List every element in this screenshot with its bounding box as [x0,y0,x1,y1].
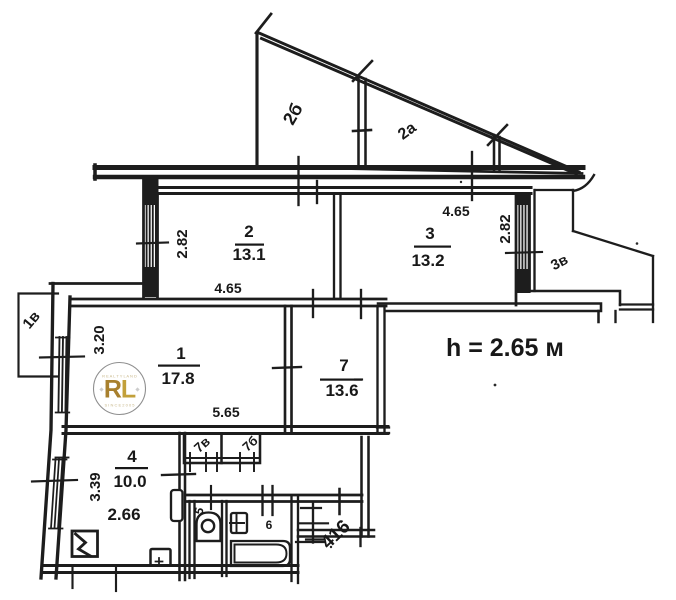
svg-text:h = 2.65 м: h = 2.65 м [446,334,564,362]
svg-text:3: 3 [425,224,434,243]
svg-text:2: 2 [244,222,253,241]
svg-text:3.39: 3.39 [87,472,104,501]
svg-text:2.66: 2.66 [107,505,140,524]
svg-text:R E A L T Y L A N D: R E A L T Y L A N D [102,374,137,379]
svg-text:S I N C E 2 0 0 5: S I N C E 2 0 0 5 [104,403,135,408]
svg-text:13.2: 13.2 [411,251,444,270]
svg-text:RL: RL [104,376,136,404]
svg-text:10.0: 10.0 [113,472,146,491]
svg-text:4: 4 [127,447,137,466]
svg-text:13.1: 13.1 [232,245,265,264]
svg-text:2.82: 2.82 [174,229,191,258]
svg-text:5.65: 5.65 [212,404,239,420]
svg-text:1: 1 [176,344,185,363]
svg-text:7: 7 [339,356,348,375]
svg-text:4.65: 4.65 [442,203,469,219]
svg-text:17.8: 17.8 [161,369,194,388]
svg-text:3.20: 3.20 [91,325,108,354]
svg-text:13.6: 13.6 [325,381,358,400]
svg-text:2.82: 2.82 [497,214,514,243]
svg-text:4.65: 4.65 [214,280,241,296]
svg-text:6: 6 [266,518,273,532]
